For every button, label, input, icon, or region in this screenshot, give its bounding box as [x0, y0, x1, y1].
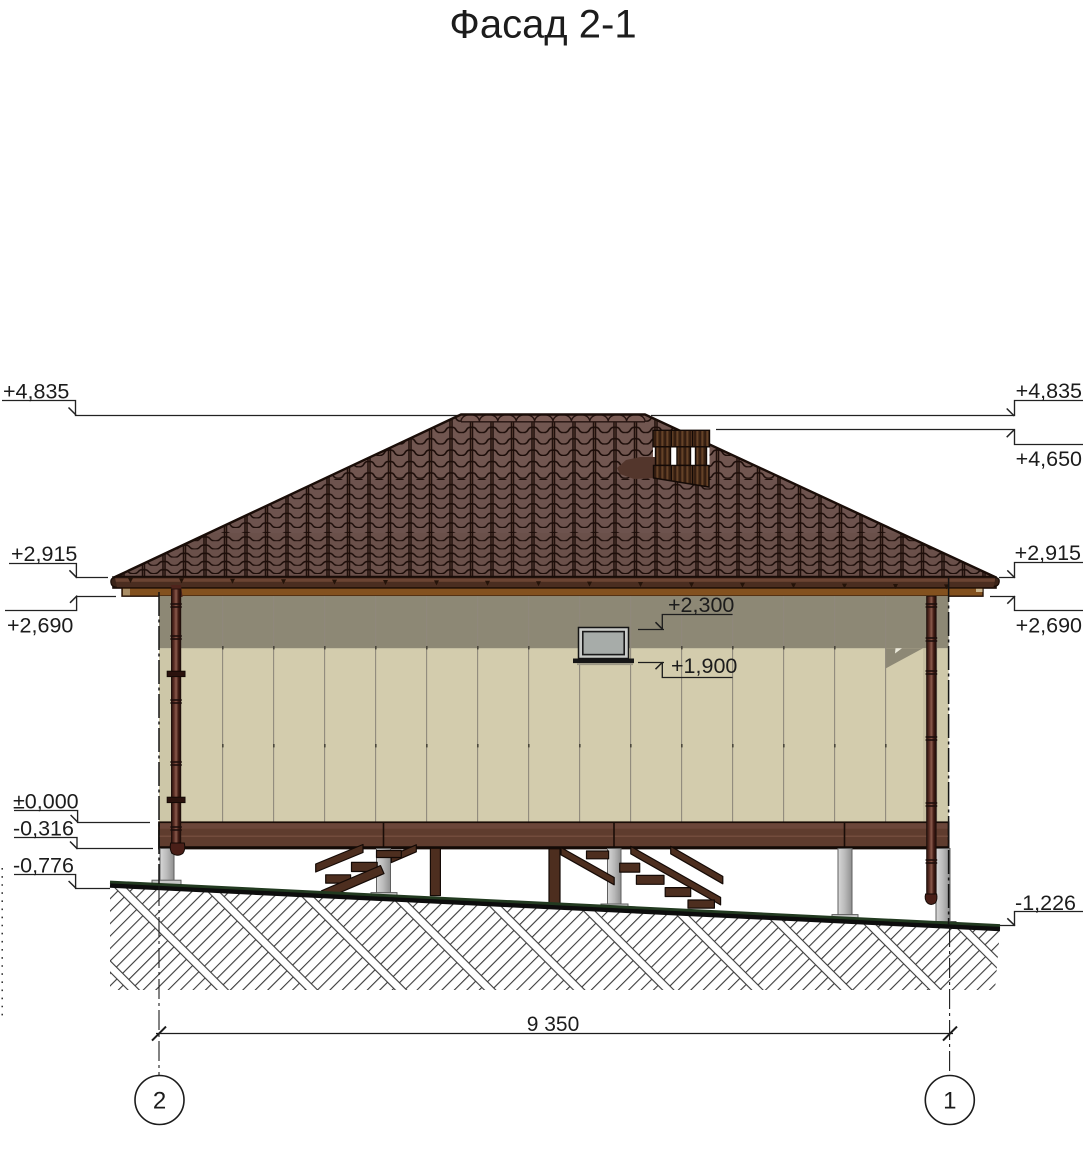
svg-text:+2,300: +2,300: [668, 593, 734, 617]
svg-text:Фасад 2-1: Фасад 2-1: [449, 3, 636, 47]
svg-text:-0,776: -0,776: [13, 854, 74, 878]
svg-text:-0,316: -0,316: [13, 817, 74, 841]
svg-text:-1,226: -1,226: [1015, 891, 1076, 915]
svg-text:+2,690: +2,690: [1016, 614, 1082, 638]
svg-text:2: 2: [153, 1088, 166, 1115]
svg-text:+2,915: +2,915: [1015, 541, 1081, 565]
svg-text:+2,690: +2,690: [7, 614, 73, 638]
svg-text:1: 1: [943, 1088, 956, 1115]
svg-text:+4,835: +4,835: [1016, 379, 1082, 403]
svg-text:+4,650: +4,650: [1016, 447, 1082, 471]
svg-text:+2,915: +2,915: [11, 542, 77, 566]
svg-text:+4,835: +4,835: [3, 380, 69, 404]
svg-text:9 350: 9 350: [527, 1013, 580, 1036]
svg-text:±0,000: ±0,000: [13, 790, 79, 814]
svg-text:+1,900: +1,900: [671, 654, 737, 678]
